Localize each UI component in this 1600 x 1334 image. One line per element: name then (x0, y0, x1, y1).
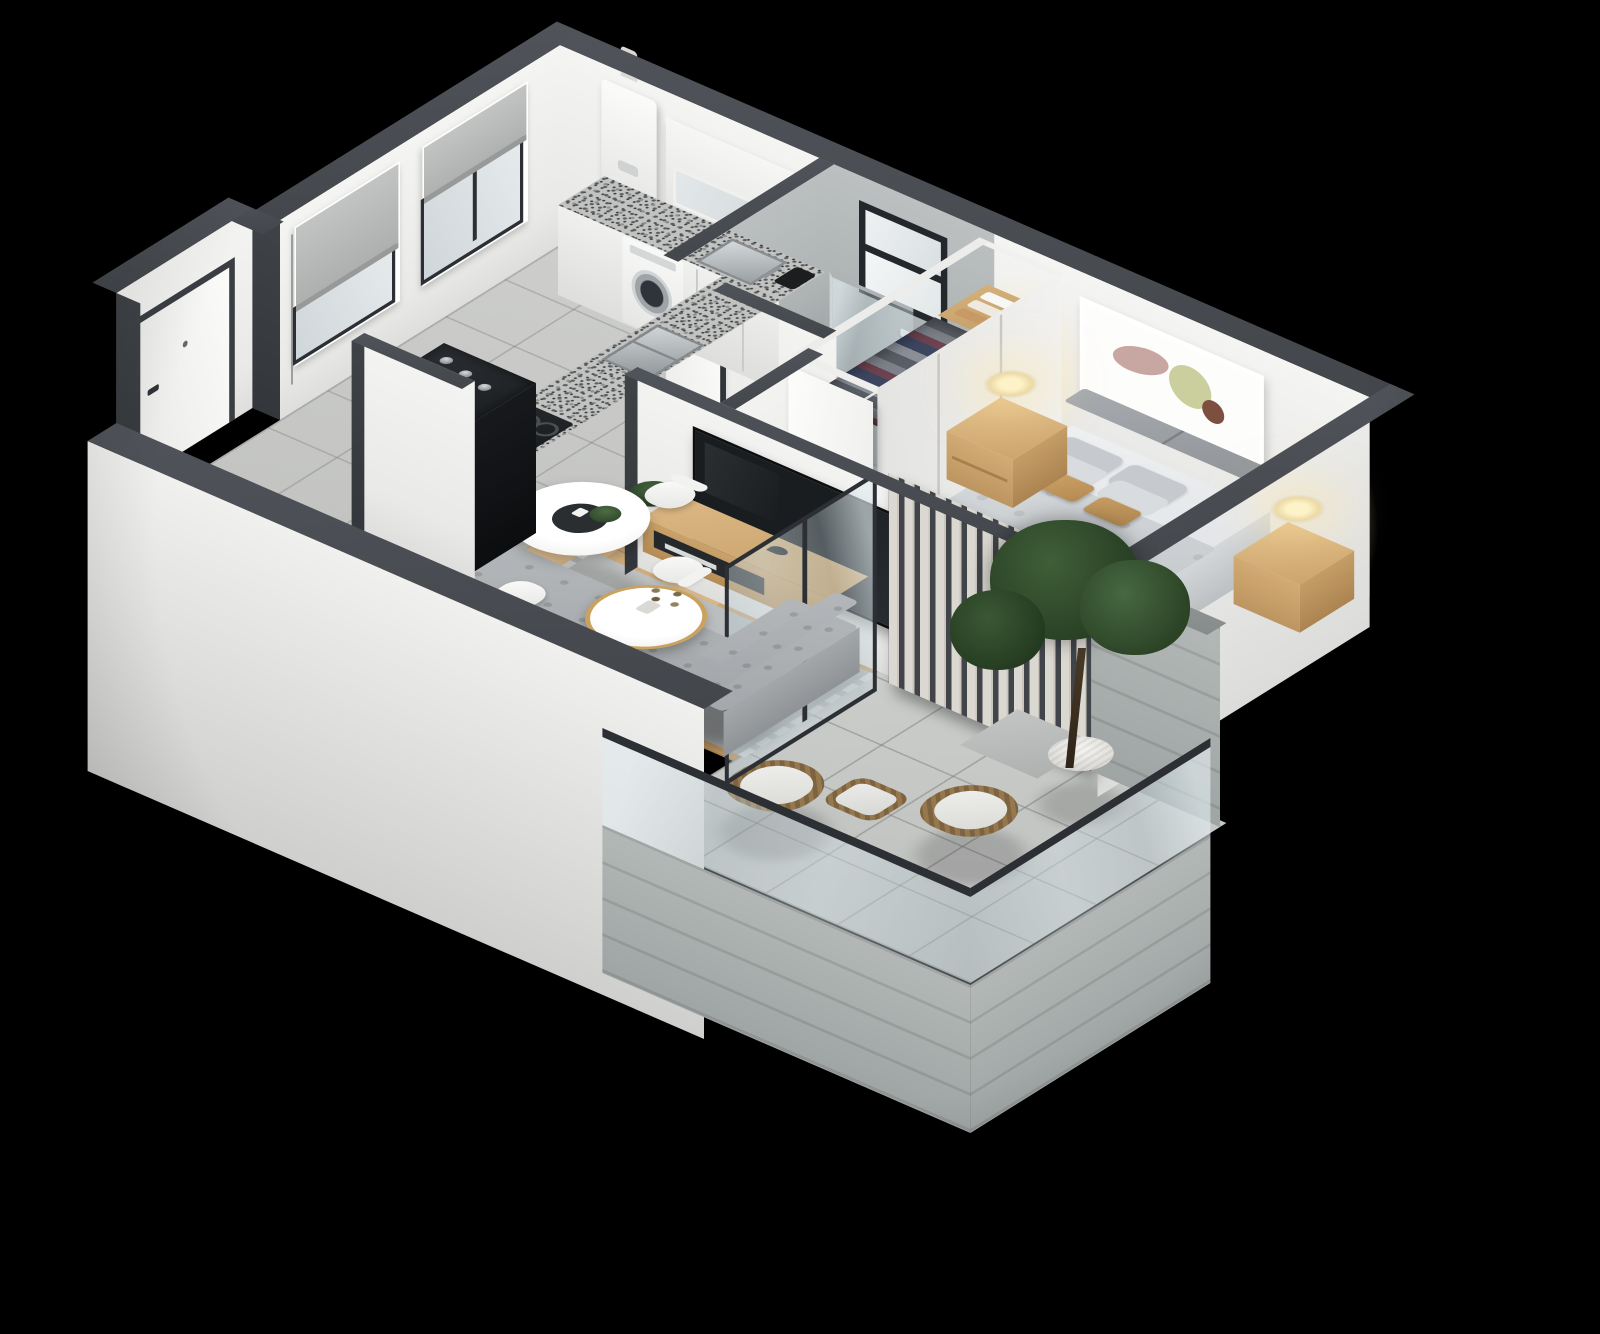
sink-divider (633, 341, 678, 361)
door-peephole (183, 340, 188, 349)
nightstand-left-drawer (952, 456, 1007, 483)
shade-pull-chain (291, 234, 293, 385)
art-blob-brown (1202, 396, 1224, 428)
kitchen-stub-endcap (352, 333, 365, 541)
headboard-seam (1161, 430, 1185, 444)
west-wall-endcap (252, 208, 280, 420)
heater-panel (618, 159, 638, 178)
tree-foliage-left (950, 590, 1045, 670)
tree-foliage-right (1080, 560, 1190, 655)
entrance-door-handle (148, 384, 159, 397)
window-1-sash (473, 169, 477, 242)
bottle-3 (475, 382, 494, 392)
bottle-1 (437, 356, 456, 366)
art-blob-pink (1110, 342, 1171, 379)
isometric-apartment-render (0, 0, 1600, 1334)
